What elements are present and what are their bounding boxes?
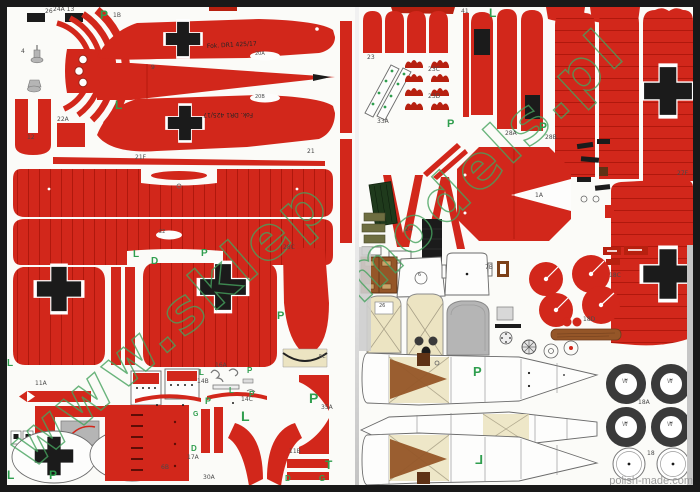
- diagonal-strip-parts: [365, 65, 411, 120]
- wheel-cover-discs: [529, 255, 620, 327]
- fuselage-frames: [361, 353, 597, 485]
- cowl-half-moon: [283, 349, 327, 367]
- fuselage-side-right: Fok. DR1 425/17: [97, 19, 335, 61]
- footer-site-text: polish-made.com: [609, 475, 693, 485]
- fuselage-marking-left: Fok. DR1 425/17: [203, 111, 253, 118]
- fuselage-belly-panel: [97, 63, 335, 100]
- arched-cap-parts: [363, 11, 448, 53]
- square-part-22A: [57, 123, 85, 147]
- left-sheet-graphics: Fok. DR1 425/17 Fok. DR1 425/17: [7, 7, 355, 485]
- leading-edge-strip: [53, 157, 325, 166]
- fuselage-side-left: Fok. DR1 425/17: [97, 94, 335, 152]
- small-metal-parts: [28, 45, 44, 92]
- left-sheet: Fok. DR1 425/17 Fok. DR1 425/17: [7, 7, 355, 485]
- fillet-pieces: [228, 375, 329, 485]
- right-sheet-graphics: models.pl polish-made.com: [359, 7, 693, 485]
- clip-parts: [405, 60, 449, 110]
- scanned-model-sheet: Fok. DR1 425/17 Fok. DR1 425/17: [0, 0, 700, 492]
- tail-skid-fork: [15, 99, 51, 155]
- edge-strip-parts: [340, 21, 352, 243]
- rear-deck-panel: [603, 179, 693, 345]
- wheels: [611, 369, 690, 481]
- right-sheet: models.pl polish-made.com L412333A23C23D…: [359, 7, 693, 485]
- propeller-blank: [551, 329, 621, 340]
